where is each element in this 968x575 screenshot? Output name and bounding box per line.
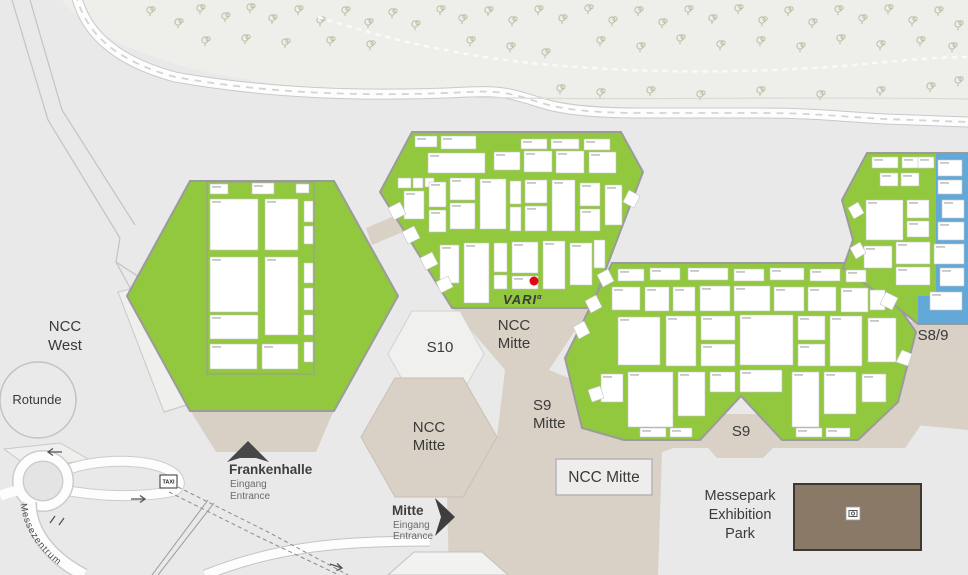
booth-number-speck bbox=[442, 247, 451, 249]
booth-number-speck bbox=[828, 430, 837, 432]
booth-number-speck bbox=[675, 289, 684, 291]
booth-number-speck bbox=[776, 289, 785, 291]
label-ncc-west-2: West bbox=[48, 337, 83, 354]
map-canvas: TAXI Messezentrum NCC West Rotunde S10 N… bbox=[0, 0, 968, 575]
booth bbox=[441, 136, 476, 149]
booth bbox=[521, 139, 547, 149]
booth-number-speck bbox=[452, 180, 461, 182]
booth-number-speck bbox=[794, 374, 803, 376]
exhibitor-logo-vario[interactable]: VARIα bbox=[503, 292, 542, 307]
booth-number-speck bbox=[586, 141, 595, 143]
booths-s9 bbox=[601, 268, 896, 437]
booth bbox=[792, 372, 819, 427]
label-ncc-mitte-upper-2: Mitte bbox=[498, 335, 531, 352]
taxi-stand-icon: TAXI bbox=[160, 475, 177, 488]
label-frankenhalle: Frankenhalle bbox=[229, 462, 313, 477]
booth bbox=[688, 268, 728, 280]
booth bbox=[512, 242, 538, 273]
booth-number-speck bbox=[431, 184, 440, 186]
booth-number-speck bbox=[909, 223, 918, 225]
booth bbox=[678, 372, 705, 416]
booth bbox=[826, 428, 850, 437]
booth-number-speck bbox=[514, 278, 523, 280]
booth-number-speck bbox=[431, 212, 440, 214]
booth-number-speck bbox=[406, 193, 415, 195]
booth bbox=[210, 184, 228, 194]
booth-number-speck bbox=[514, 244, 523, 246]
booth bbox=[740, 315, 793, 365]
booth-number-speck bbox=[603, 376, 612, 378]
booth-number-speck bbox=[267, 259, 276, 261]
booth-number-speck bbox=[452, 205, 461, 207]
booth-number-speck bbox=[630, 374, 639, 376]
roundabout bbox=[0, 456, 179, 506]
booth-number-speck bbox=[690, 270, 699, 272]
booth bbox=[304, 201, 313, 222]
booth-number-speck bbox=[672, 430, 681, 432]
booth bbox=[450, 203, 475, 229]
booth bbox=[650, 268, 680, 280]
label-frankenhalle-entrance: Entrance bbox=[230, 491, 270, 502]
booth-number-speck bbox=[430, 155, 439, 157]
label-ncc-mitte-upper-1: NCC bbox=[498, 317, 531, 334]
booth-number-speck bbox=[702, 288, 711, 290]
booth bbox=[304, 342, 313, 362]
booth-number-speck bbox=[742, 317, 751, 319]
booth-number-speck bbox=[940, 224, 949, 226]
booth-number-speck bbox=[212, 259, 221, 261]
booth bbox=[210, 257, 258, 312]
booth-number-speck bbox=[798, 430, 807, 432]
booth bbox=[552, 180, 575, 231]
booth bbox=[618, 269, 644, 281]
booth-number-speck bbox=[591, 154, 600, 156]
booth-number-speck bbox=[254, 185, 263, 187]
booth bbox=[880, 173, 898, 186]
booth bbox=[830, 316, 862, 366]
booth bbox=[304, 315, 313, 335]
booth-number-speck bbox=[868, 202, 877, 204]
booth bbox=[570, 243, 592, 285]
booth-number-speck bbox=[742, 372, 751, 374]
booth bbox=[670, 428, 692, 437]
booth-number-speck bbox=[898, 269, 907, 271]
booth-number-speck bbox=[482, 181, 491, 183]
booth bbox=[846, 270, 866, 282]
booth-number-speck bbox=[800, 346, 809, 348]
booth-number-speck bbox=[523, 141, 532, 143]
label-s10: S10 bbox=[427, 339, 454, 356]
booth bbox=[413, 178, 423, 188]
booth-number-speck bbox=[870, 320, 879, 322]
booth bbox=[872, 157, 898, 168]
booth bbox=[866, 200, 903, 240]
booth-number-speck bbox=[772, 270, 781, 272]
booth-number-speck bbox=[212, 317, 221, 319]
booth bbox=[210, 199, 258, 250]
label-ncc-mitte-hex-1: NCC bbox=[413, 419, 446, 436]
label-mitte: Mitte bbox=[392, 503, 424, 518]
booth bbox=[734, 269, 764, 281]
booth bbox=[265, 257, 298, 335]
booth-number-speck bbox=[466, 245, 475, 247]
booth-number-speck bbox=[832, 318, 841, 320]
booth-number-speck bbox=[944, 202, 953, 204]
booth bbox=[810, 269, 840, 281]
booth bbox=[862, 374, 886, 402]
booth bbox=[480, 179, 506, 229]
booth-number-speck bbox=[620, 319, 629, 321]
booth-number-speck bbox=[212, 346, 221, 348]
booth-number-speck bbox=[264, 346, 273, 348]
label-mitte-entrance: Entrance bbox=[393, 531, 433, 542]
booth bbox=[594, 240, 605, 268]
booth-number-speck bbox=[864, 376, 873, 378]
booth-number-speck bbox=[703, 346, 712, 348]
booth bbox=[918, 157, 934, 168]
booth-number-speck bbox=[526, 153, 535, 155]
label-ncc-west-1: NCC bbox=[49, 318, 82, 335]
booth-number-speck bbox=[703, 318, 712, 320]
label-s8-9: S8/9 bbox=[918, 327, 949, 344]
booth-number-speck bbox=[620, 271, 629, 273]
booth bbox=[440, 245, 459, 283]
booth bbox=[304, 263, 313, 283]
booth bbox=[304, 226, 313, 244]
booth-number-speck bbox=[843, 290, 852, 292]
booth bbox=[901, 173, 919, 186]
booth-number-speck bbox=[607, 187, 616, 189]
booth-number-speck bbox=[736, 288, 745, 290]
booth bbox=[666, 316, 696, 366]
booth-number-speck bbox=[800, 318, 809, 320]
booth-number-speck bbox=[904, 159, 913, 161]
booth-number-speck bbox=[572, 245, 581, 247]
booth bbox=[265, 199, 298, 250]
booth bbox=[464, 243, 489, 303]
label-frankenhalle-eingang: Eingang bbox=[230, 479, 267, 490]
booth-number-speck bbox=[212, 186, 221, 188]
booth-number-speck bbox=[554, 182, 563, 184]
booth bbox=[304, 288, 313, 310]
booth bbox=[494, 243, 507, 272]
booth bbox=[824, 372, 856, 414]
viewpoint-icon bbox=[846, 507, 860, 520]
booth bbox=[868, 318, 896, 362]
booth bbox=[398, 178, 411, 188]
booth-number-speck bbox=[810, 289, 819, 291]
booth-number-speck bbox=[647, 289, 656, 291]
booth-number-speck bbox=[942, 270, 951, 272]
booth-number-speck bbox=[920, 159, 929, 161]
booth-number-speck bbox=[545, 243, 554, 245]
booth bbox=[770, 268, 804, 280]
label-s9-mitte-1: S9 bbox=[533, 397, 551, 414]
booth bbox=[543, 241, 565, 289]
booth bbox=[601, 374, 623, 402]
label-s9: S9 bbox=[732, 423, 750, 440]
booth-number-speck bbox=[553, 141, 562, 143]
label-mitte-eingang: Eingang bbox=[393, 520, 430, 531]
booth-number-speck bbox=[940, 162, 949, 164]
booth bbox=[404, 191, 424, 219]
booth-number-speck bbox=[668, 318, 677, 320]
label-s9-mitte-2: Mitte bbox=[533, 415, 566, 432]
booth-number-speck bbox=[882, 175, 891, 177]
booth-number-speck bbox=[652, 270, 661, 272]
label-rotunde: Rotunde bbox=[12, 392, 61, 407]
booth-number-speck bbox=[417, 138, 426, 140]
fairground-map: TAXI Messezentrum NCC West Rotunde S10 N… bbox=[0, 0, 968, 575]
booth bbox=[510, 181, 521, 204]
label-ncc-mitte-hex-2: Mitte bbox=[413, 437, 446, 454]
booth-number-speck bbox=[940, 182, 949, 184]
booth bbox=[415, 136, 437, 147]
booth-number-speck bbox=[932, 294, 941, 296]
booth-number-speck bbox=[496, 154, 505, 156]
booth-number-speck bbox=[527, 182, 536, 184]
booth-number-speck bbox=[712, 374, 721, 376]
booth bbox=[640, 428, 666, 437]
booth bbox=[796, 428, 822, 437]
booth-number-speck bbox=[903, 175, 912, 177]
booth bbox=[252, 183, 274, 194]
booth-number-speck bbox=[936, 246, 945, 248]
booth-number-speck bbox=[582, 185, 591, 187]
booth-number-speck bbox=[558, 153, 567, 155]
booth bbox=[618, 317, 660, 365]
booth bbox=[510, 207, 521, 231]
label-messepark-1: Messepark bbox=[705, 488, 777, 504]
booth bbox=[494, 275, 507, 289]
booth bbox=[605, 185, 622, 225]
booth bbox=[296, 184, 309, 193]
booth bbox=[584, 139, 610, 150]
booth-number-speck bbox=[582, 211, 591, 213]
label-ncc-mitte-box: NCC Mitte bbox=[568, 469, 639, 486]
label-messepark-2: Exhibition bbox=[709, 507, 772, 523]
frankenhalle-forecourt bbox=[190, 410, 334, 452]
booth-number-speck bbox=[736, 271, 745, 273]
booth-number-speck bbox=[680, 374, 689, 376]
booth-number-speck bbox=[866, 248, 875, 250]
booth-number-speck bbox=[267, 201, 276, 203]
booth-number-speck bbox=[848, 272, 857, 274]
booth-number-speck bbox=[614, 289, 623, 291]
booth-number-speck bbox=[874, 159, 883, 161]
exhibitor-marker-dot[interactable] bbox=[530, 277, 539, 286]
booth-number-speck bbox=[212, 201, 221, 203]
booth-number-speck bbox=[443, 138, 452, 140]
booth-number-speck bbox=[812, 271, 821, 273]
booth-number-speck bbox=[642, 430, 651, 432]
booth bbox=[551, 139, 579, 149]
booth-number-speck bbox=[909, 202, 918, 204]
booth-number-speck bbox=[826, 374, 835, 376]
taxi-label: TAXI bbox=[162, 480, 175, 486]
label-messepark-3: Park bbox=[725, 526, 756, 542]
booth bbox=[628, 372, 673, 427]
booth-number-speck bbox=[527, 208, 536, 210]
booth-number-speck bbox=[898, 244, 907, 246]
